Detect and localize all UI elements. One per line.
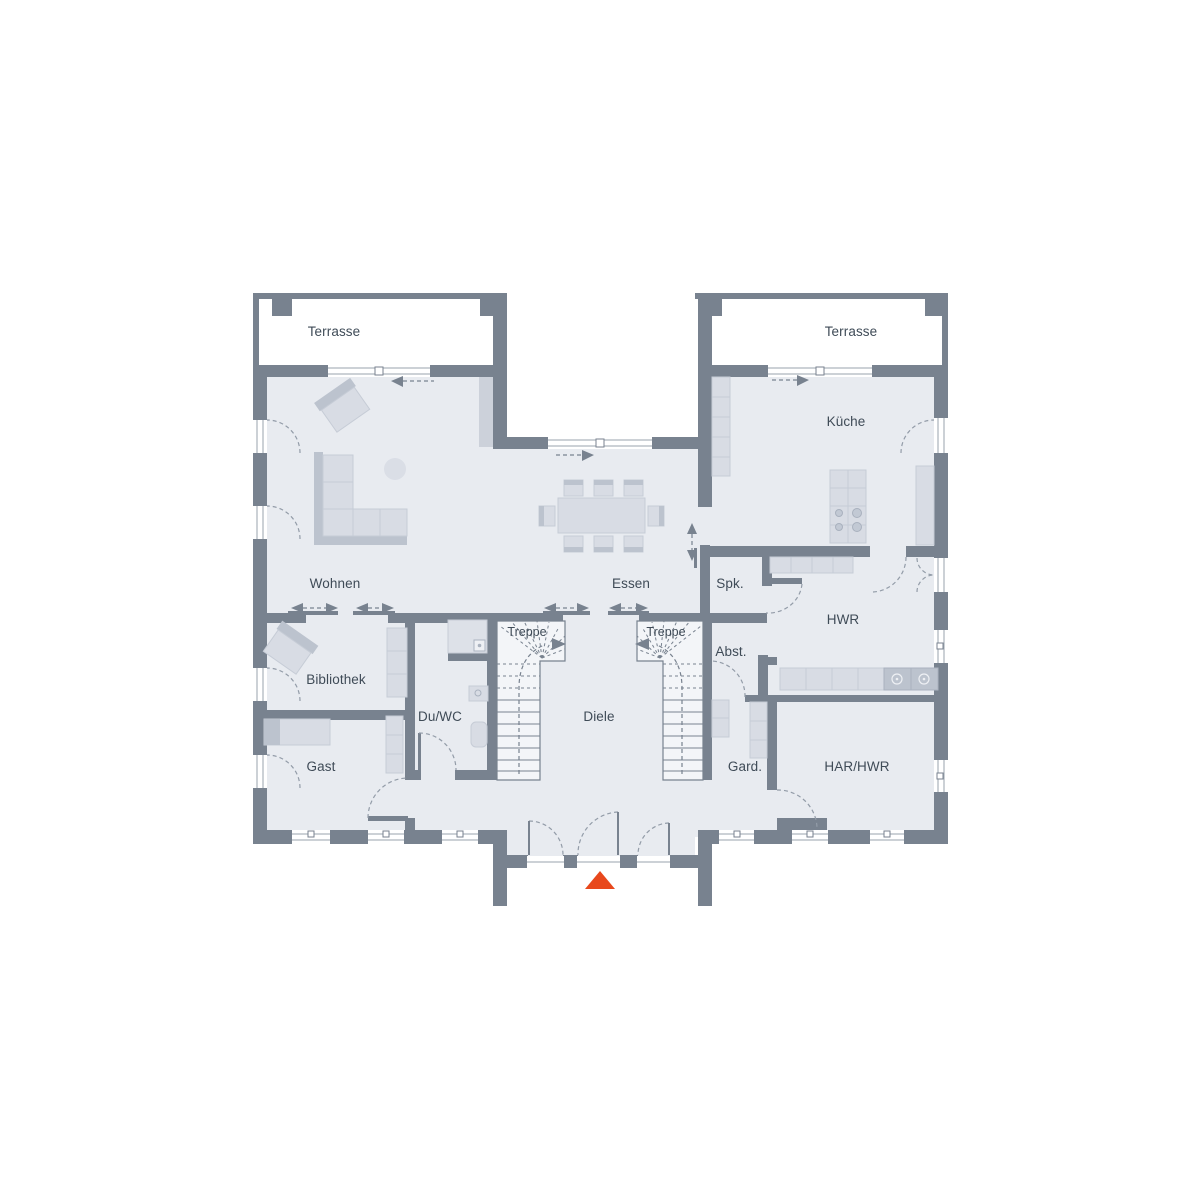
window-south-east [719, 830, 904, 844]
room-label-treppe-west: Treppe [507, 625, 546, 639]
room-label-har-hwr: HAR/HWR [824, 759, 889, 774]
room-label-gast: Gast [307, 759, 336, 774]
window-east-1 [934, 418, 948, 453]
floorplan-drawing: Terrasse Terrasse Küche Wohnen Essen Spk… [0, 0, 1200, 1200]
window-west-1 [253, 420, 267, 453]
room-label-essen: Essen [612, 576, 650, 591]
kitchen-island [830, 470, 866, 543]
wall-panel [479, 377, 493, 447]
room-label-treppe-east: Treppe [646, 625, 685, 639]
washbasin [469, 686, 488, 701]
window-west-2 [253, 506, 267, 539]
window-west-4 [253, 755, 267, 788]
room-label-terrasse-east: Terrasse [825, 324, 878, 339]
room-label-wohnen: Wohnen [310, 576, 361, 591]
sliding-window-recess [548, 437, 652, 449]
room-label-hwr: HWR [827, 612, 860, 627]
room-label-terrasse-west: Terrasse [308, 324, 361, 339]
sliding-window-east-terrace [768, 365, 872, 377]
sliding-window-west-terrace [328, 365, 430, 377]
entrance-marker-icon [585, 871, 615, 889]
room-label-bibliothek: Bibliothek [306, 672, 366, 687]
bibliothek-closet [387, 628, 407, 697]
room-label-diele: Diele [583, 709, 614, 724]
room-label-abst: Abst. [715, 644, 746, 659]
room-label-spk: Spk. [716, 576, 743, 591]
entrance-thresholds [527, 856, 670, 868]
window-west-3 [253, 668, 267, 701]
shower [448, 620, 487, 653]
room-label-duwc: Du/WC [418, 709, 462, 724]
window-east-4 [934, 760, 948, 792]
window-east-2 [934, 558, 948, 592]
floorplan-page: Terrasse Terrasse Küche Wohnen Essen Spk… [0, 0, 1200, 1200]
gast-closet [386, 716, 403, 773]
toilet [471, 722, 487, 747]
window-east-3 [934, 630, 948, 663]
room-label-kueche: Küche [827, 414, 866, 429]
room-label-gard: Gard. [728, 759, 762, 774]
window-south-west [292, 830, 478, 844]
side-table [384, 458, 406, 480]
gast-bed [264, 719, 330, 745]
